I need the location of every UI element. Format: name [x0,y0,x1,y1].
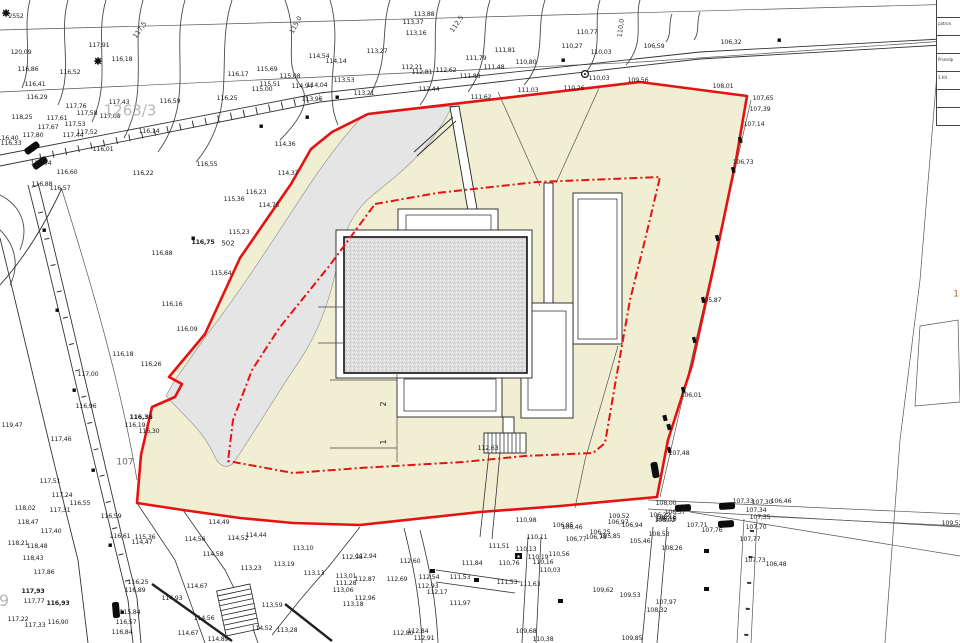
elevation-label: 116,75 [191,240,214,246]
elevation-label: 113,16 [406,31,427,37]
elevation-label: 107,77 [740,537,761,543]
elevation-label: 109,85 [622,636,643,642]
elevation-label: 113,88 [414,12,435,18]
elevation-label: 116,30 [139,429,160,435]
elevation-label: 117,52 [77,130,98,136]
manhole-icon [582,71,589,78]
elevation-label: 113,10 [293,546,314,552]
elevation-label: 117,80 [23,133,44,139]
elevation-label: 112,62 [436,68,457,74]
elevation-label: 107,97 [656,600,677,606]
elevation-label: 111,28 [336,581,357,587]
elevation-label: 114,93 [162,596,183,602]
elevation-label: 116,86 [18,67,39,73]
elevation-label: 107,48 [669,451,690,457]
elevation-label: 113,53 [334,78,355,84]
elevation-label: 108,02 [655,518,676,524]
elevation-label: 117,58 [77,111,98,117]
elevation-label: 111,51 [489,544,510,550]
elevation-label: 112,94 [356,554,377,560]
elevation-label: 110,77 [577,30,598,36]
elevation-label: 112,63 [478,446,499,452]
elevation-label: 113,21 [354,91,375,97]
elevation-label: 116,60 [57,170,78,176]
elevation-label: 116,33 [1,141,22,147]
elevation-label: 114,56 [185,537,206,543]
elevation-label: 116,25 [217,96,238,102]
title-block-row: patron [937,18,960,36]
elevation-label: 110,27 [562,44,583,50]
elevation-label: 111,03 [518,88,539,94]
elevation-label: 109,62 [593,588,614,594]
elevation-label: 114,67 [178,631,199,637]
parking-space-number: 2 [380,401,388,406]
elevation-label: 108,32 [647,608,668,614]
elevation-label: 108,53 [649,532,670,538]
elevation-label: 115,00 [252,87,273,93]
elevation-label: 112,87 [355,577,376,583]
elevation-label: 115,23 [229,230,250,236]
elevation-label: 105,87 [701,298,722,304]
title-block-row [937,90,960,108]
elevation-label: 116,59 [160,99,181,105]
elevation-label: 115,69 [257,67,278,73]
elevation-label: 117,91 [89,43,110,49]
elevation-label: 118,21 [8,541,29,547]
elevation-label: 114,47 [132,540,153,546]
elevation-label: 107,76 [702,528,723,534]
elevation-label: 116,36 [129,415,152,421]
elevation-label: 110,76 [499,561,520,567]
elevation-label: 115,08 [280,74,301,80]
elevation-label: 111,84 [462,561,483,567]
elevation-label: 110,26 [564,86,585,92]
elevation-label: 114,58 [203,552,224,558]
elevation-label: 107,65 [753,96,774,102]
elevation-label: 116,26 [141,362,162,368]
elevation-label: 112,54 [419,575,440,581]
elevation-label: 116,57 [50,186,71,192]
elevation-label: 110,03 [591,50,612,56]
elevation-label: 117,93 [21,589,44,595]
elevation-label: 111,97 [450,601,471,607]
elevation-label: 114,49 [209,520,230,526]
elevation-label: 110,03 [589,76,610,82]
elevation-label: 114,36 [275,142,296,148]
elevation-label: 112,17 [427,590,448,596]
elevation-label: 116,25 [128,580,149,586]
elevation-label: 117,33 [25,623,46,629]
elevation-label: 108,26 [662,546,683,552]
elevation-label: 106,94 [622,523,643,529]
elevation-label: 110,38 [533,637,554,643]
elevation-label: 117,94 [31,161,52,167]
elevation-label: 116,29 [27,95,48,101]
elevation-label: 106,77 [566,537,587,543]
parcel-number-label: 9 [0,593,9,609]
elevation-label: 109,68 [516,629,537,635]
elevation-label: 110,16 [533,560,554,566]
elevation-label: 106,46 [562,525,583,531]
elevation-label: 114,44 [246,533,267,539]
elevation-label: 113,96 [302,97,323,103]
elevation-label: 115,36 [224,197,245,203]
elevation-label: 114,52 [228,536,249,542]
east-corridor [544,183,553,305]
elevation-label: 118,02 [15,506,36,512]
elevation-label: 114,37 [278,171,299,177]
elevation-label: 111,62 [471,95,492,101]
elevation-label: 112,81 [412,70,433,76]
elevation-label: 114,52 [252,626,273,632]
elevation-label: 111,63 [520,582,541,588]
elevation-label: 116,59 [101,514,122,520]
elevation-label: 116,22 [133,171,154,177]
south-corridor [503,417,514,433]
elevation-label: 115,64 [211,271,232,277]
elevation-label: 116,89 [125,588,146,594]
elevation-label: 113,18 [343,602,364,608]
elevation-label: 118,25 [12,115,33,121]
elevation-label: 111,53 [497,580,518,586]
elevation-label: 1 [953,291,959,300]
elevation-label: 117,46 [51,437,72,443]
elevation-label: 110,03 [540,568,561,574]
elevation-label: 2552 [8,14,23,20]
elevation-label: 107,33 [733,499,754,505]
elevation-label: 107,39 [750,107,771,113]
elevation-label: 116,16 [162,302,183,308]
elevation-label: 116,84 [112,630,133,636]
elevation-label: 116,18 [112,57,133,63]
elevation-label: 115,84 [120,610,141,616]
elevation-label: 111,79 [466,56,487,62]
elevation-label: 116,93 [46,601,69,607]
elevation-label: 114,04 [307,83,328,89]
elevation-label: 118,47 [18,520,39,526]
elevation-label: 109,56 [628,78,649,84]
elevation-label: 106,48 [766,562,787,568]
elevation-label: 109,52 [942,521,960,527]
elevation-label: 116,01 [93,147,114,153]
elevation-label: 111,88 [460,74,481,80]
elevation-label: 107,73 [745,558,766,564]
parking-space-number: 1 [380,439,388,444]
elevation-label: 119,47 [2,423,23,429]
elevation-label: 117,51 [40,479,61,485]
elevation-label: 105,85 [600,534,621,540]
title-block-row: 1.hit [937,72,960,90]
elevation-label: 110,56 [549,552,570,558]
elevation-label: 111,48 [484,65,505,71]
elevation-label: 114,67 [187,584,208,590]
elevation-label: 116,90 [48,620,69,626]
elevation-label: 106,73 [733,160,754,166]
parcel-number-label: 502 [221,241,234,248]
elevation-label: 117,67 [38,125,59,131]
elevation-label: 108,01 [713,84,734,90]
elevation-label: 117,53 [65,122,86,128]
east-wing [573,193,622,344]
elevation-label: 118,48 [27,544,48,550]
elevation-label: 114,14 [326,59,347,65]
elevation-label: 114,75 [259,203,280,209]
elevation-label: 107,30 [752,500,773,506]
elevation-label: 116,55 [197,162,218,168]
elevation-label: 105,46 [630,539,651,545]
elevation-label: 116,61 [110,534,131,540]
elevation-label: 112,93 [418,584,439,590]
parcel-number-label: 1263/3 [104,104,157,119]
elevation-label: 116,41 [25,82,46,88]
elevation-label: 106,01 [681,393,702,399]
elevation-label: 116,23 [246,190,267,196]
elevation-label: 120,09 [11,50,32,56]
elevation-label: 107,35 [750,515,771,521]
elevation-label: 110,11 [527,535,548,541]
elevation-label: 110,80 [516,60,537,66]
elevation-label: 117,31 [50,508,71,514]
elevation-label: 113,19 [274,562,295,568]
elevation-label: 116,18 [113,352,134,358]
elevation-label: 116,17 [228,72,249,78]
title-block-row [937,0,960,18]
elevation-label: 117,77 [24,599,45,605]
elevation-label: 109,53 [620,593,641,599]
elevation-label: 116,14 [139,129,160,135]
elevation-label: 117,40 [41,529,62,535]
elevation-label: 116,88 [152,251,173,257]
elevation-label: 107,70 [746,525,767,531]
elevation-label: 118,43 [23,556,44,562]
parcel-number-label: 107 [116,459,133,468]
elevation-label: 106,59 [644,44,665,50]
elevation-label: 113,13 [304,571,325,577]
elevation-label: 113,23 [241,566,262,572]
left-road [0,183,141,643]
elevation-label: 111,53 [450,575,471,581]
elevation-label: 112,44 [419,87,440,93]
title-block-row [937,36,960,54]
elevation-label: 114,89 [208,637,229,643]
elevation-label: 113,06 [333,588,354,594]
elevation-label: 106,32 [721,40,742,46]
elevation-label: 116,96 [76,404,97,410]
elevation-label: 108,00 [656,501,677,507]
elevation-label: 110,13 [516,547,537,553]
elevation-label: 112,80 [393,631,414,637]
elevation-label: 111,81 [495,48,516,54]
elevation-label: 107,14 [744,122,765,128]
title-block: patronPriandp1.hit [936,0,960,126]
elevation-label: 113,28 [277,628,298,634]
elevation-label: 113,27 [367,49,388,55]
title-block-row: Priandp [937,54,960,72]
elevation-label: 112,91 [414,636,435,642]
elevation-label: 112,60 [400,559,421,565]
elevation-label: 112,69 [387,577,408,583]
elevation-label: 106,46 [771,499,792,505]
elevation-label: 110,98 [516,518,537,524]
elevation-label: 113,59 [262,603,283,609]
elevation-label: 117,86 [34,570,55,576]
elevation-label: 117,00 [78,372,99,378]
elevation-label: 116,55 [70,501,91,507]
elevation-label: 117,24 [52,493,73,499]
elevation-label: 116,52 [60,70,81,76]
site-plan-map[interactable]: 2552120,09116,86116,52116,41116,29117,91… [0,0,960,643]
elevation-label: 116,09 [177,327,198,333]
elevation-label: 113,37 [403,20,424,26]
elevation-label: 114,56 [194,616,215,622]
main-hall-roof [344,237,527,373]
title-block-row [937,108,960,126]
elevation-label: 116,57 [116,620,137,626]
